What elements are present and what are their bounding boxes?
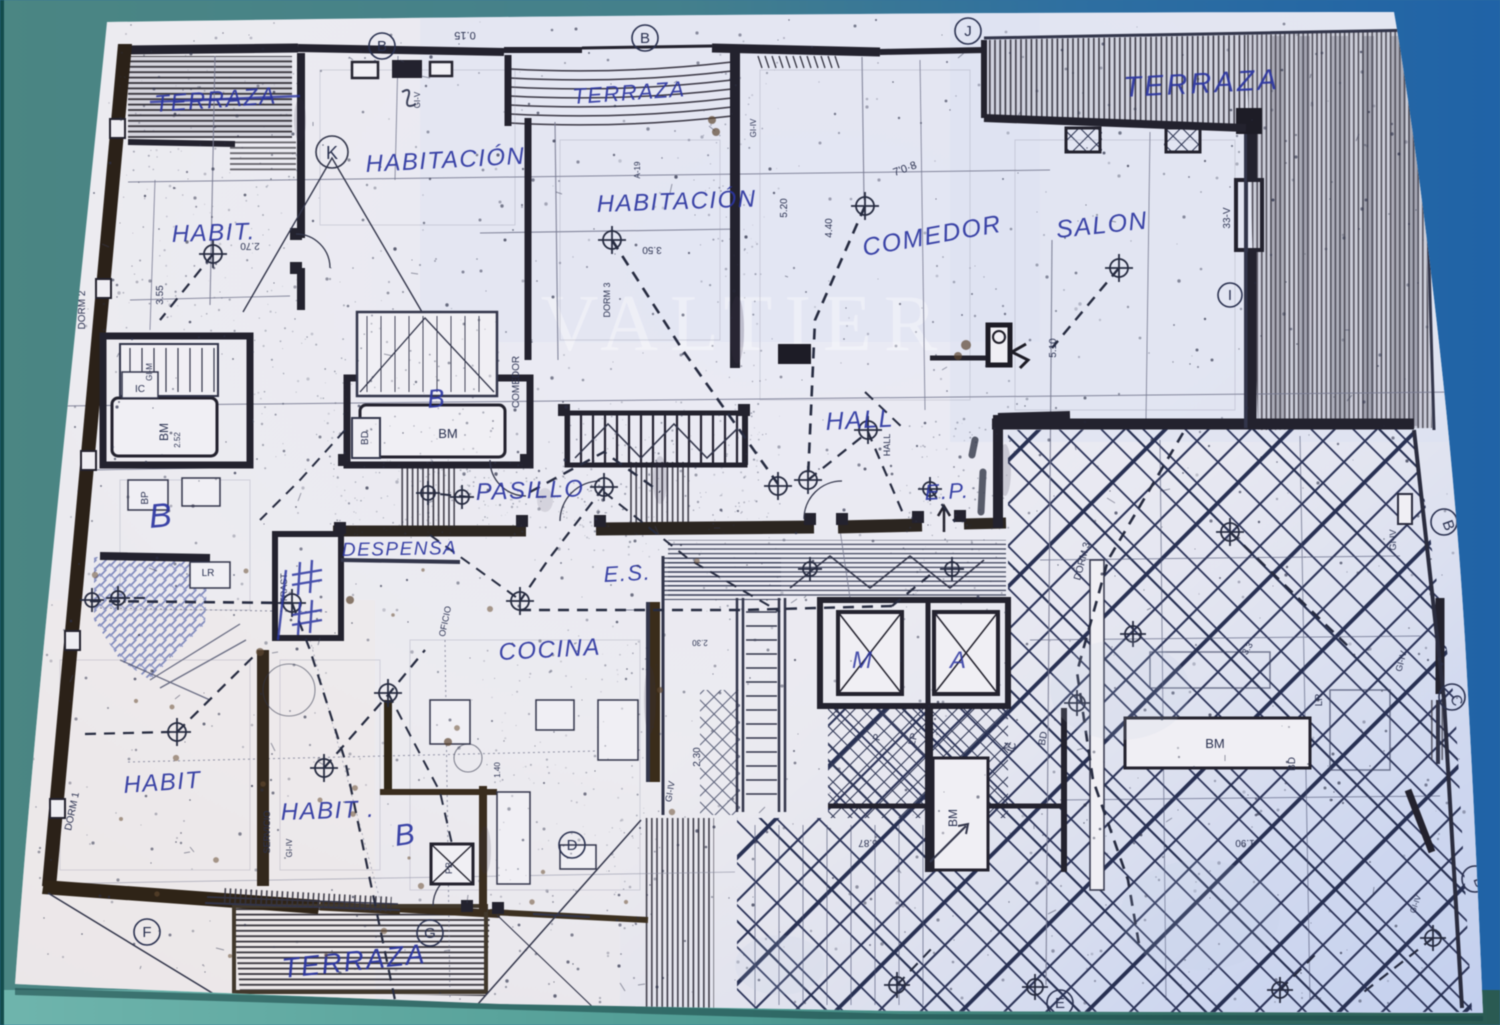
svg-text:HABITACIÓN: HABITACIÓN: [596, 185, 757, 218]
svg-text:BD: BD: [1287, 757, 1298, 771]
svg-text:DESPENSA: DESPENSA: [342, 538, 458, 561]
svg-text:E.S.: E.S.: [603, 560, 652, 587]
svg-text:2.30: 2.30: [692, 747, 703, 767]
svg-text:J: J: [964, 23, 972, 40]
svg-text:BM: BM: [157, 423, 171, 441]
svg-text:M: M: [852, 647, 872, 674]
svg-text:BD: BD: [360, 431, 371, 445]
svg-text:3.50: 3.50: [642, 244, 662, 255]
svg-text:K: K: [326, 143, 338, 163]
svg-text:0.15: 0.15: [454, 29, 475, 41]
svg-text:GI-V: GI-V: [413, 91, 422, 108]
svg-text:G: G: [424, 925, 436, 942]
svg-text:PASILLO: PASILLO: [475, 475, 585, 506]
svg-text:F: F: [142, 924, 151, 941]
svg-text:2.52: 2.52: [173, 432, 182, 448]
svg-text:1.40: 1.40: [493, 762, 502, 778]
svg-text:HALL: HALL: [882, 434, 892, 457]
svg-text:5.20: 5.20: [779, 198, 790, 218]
svg-text:A-19: A-19: [633, 161, 642, 178]
svg-text:DORM 3: DORM 3: [602, 282, 612, 317]
svg-text:B: B: [392, 817, 418, 853]
svg-text:B: B: [377, 38, 387, 55]
svg-text:GI-M: GI-M: [145, 363, 154, 381]
svg-text:PB: PB: [444, 862, 454, 874]
svg-text:B: B: [147, 496, 174, 536]
svg-text:5.10: 5.10: [1048, 338, 1059, 358]
svg-text:33-V: 33-V: [1222, 207, 1233, 228]
svg-text:BM: BM: [1205, 736, 1225, 751]
svg-text:D: D: [567, 837, 578, 854]
svg-text:HABIT.: HABIT.: [171, 218, 256, 248]
svg-text:GI-IV: GI-IV: [749, 118, 758, 137]
svg-text:B: B: [640, 30, 650, 47]
svg-text:GI-IV: GI-IV: [1388, 529, 1398, 550]
svg-text:GI-IV: GI-IV: [285, 838, 294, 857]
svg-text:4.40: 4.40: [824, 218, 835, 238]
svg-text:HABIT: HABIT: [123, 767, 204, 799]
svg-text:LR: LR: [202, 568, 215, 579]
svg-text:IC: IC: [135, 384, 145, 395]
svg-text:BM: BM: [946, 809, 960, 827]
svg-text:E: E: [1055, 995, 1065, 1012]
svg-text:COCINA: COCINA: [498, 634, 602, 666]
svg-text:E.P.: E.P.: [924, 478, 970, 505]
svg-text:I: I: [1228, 287, 1232, 304]
svg-text:SERVICIO: SERVICIO: [262, 811, 272, 854]
svg-text:COMEDOR: COMEDOR: [511, 356, 522, 408]
svg-text:6.87: 6.87: [858, 837, 878, 848]
svg-text:BM: BM: [438, 426, 458, 441]
svg-text:2.30: 2.30: [692, 638, 708, 647]
svg-text:HALL: HALL: [825, 404, 895, 436]
svg-text:A: A: [948, 647, 966, 674]
svg-text:B: B: [426, 382, 447, 414]
svg-text:HABIT .: HABIT .: [280, 796, 375, 826]
